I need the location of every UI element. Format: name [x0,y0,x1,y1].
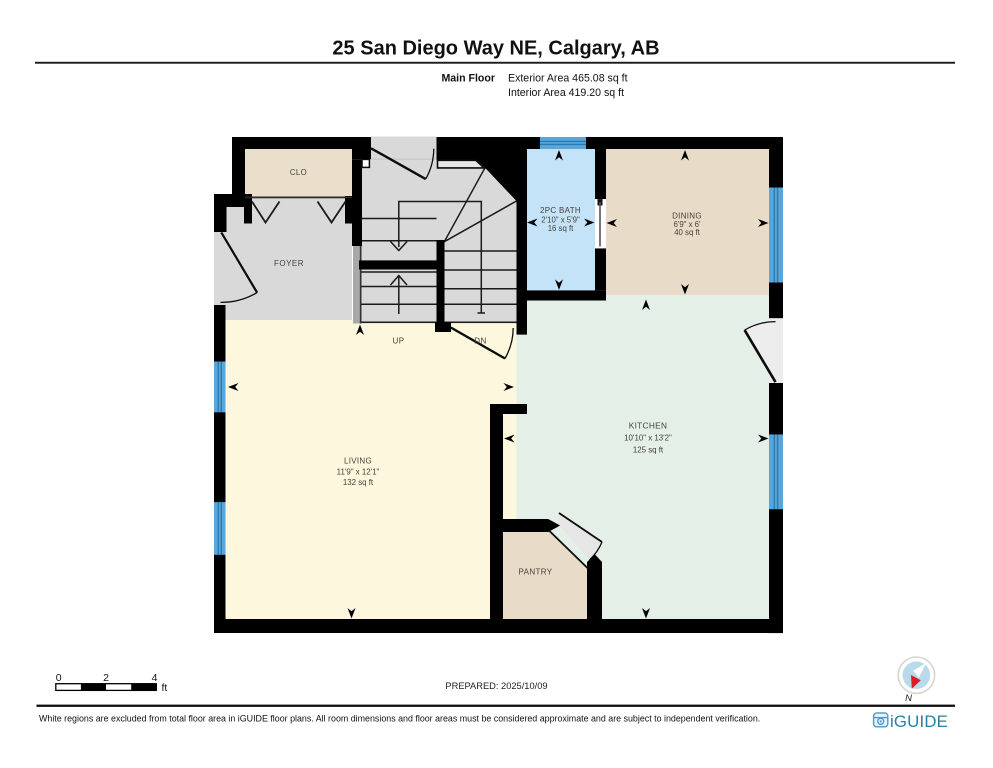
svg-text:10'10" x 13'2": 10'10" x 13'2" [624,434,672,443]
svg-text:UP: UP [392,337,404,346]
svg-text:2: 2 [103,672,109,684]
svg-text:CLO: CLO [290,168,307,177]
svg-text:iGUIDE: iGUIDE [890,712,948,731]
svg-text:N: N [905,693,912,704]
svg-text:2PC BATH: 2PC BATH [540,206,581,215]
svg-text:132 sq ft: 132 sq ft [343,478,374,487]
svg-text:PANTRY: PANTRY [518,568,552,577]
svg-text:FOYER: FOYER [274,259,304,268]
svg-text:White regions are excluded fro: White regions are excluded from total fl… [39,714,760,724]
svg-text:Interior Area 419.20 sq ft: Interior Area 419.20 sq ft [508,87,624,99]
svg-text:ft: ft [162,682,168,694]
svg-text:11'9" x 12'1": 11'9" x 12'1" [337,468,380,477]
svg-text:40 sq ft: 40 sq ft [674,228,700,237]
svg-text:4: 4 [152,672,158,684]
svg-text:25 San Diego Way NE, Calgary,: 25 San Diego Way NE, Calgary, AB [332,38,659,60]
svg-text:16 sq ft: 16 sq ft [548,224,574,233]
svg-text:LIVING: LIVING [344,457,372,466]
svg-text:DN: DN [474,337,487,346]
svg-text:125 sq ft: 125 sq ft [633,446,664,455]
svg-text:Main Floor: Main Floor [441,73,495,85]
svg-text:0: 0 [56,672,62,684]
svg-text:PREPARED: 2025/10/09: PREPARED: 2025/10/09 [445,681,547,691]
svg-text:KITCHEN: KITCHEN [629,421,668,431]
svg-text:Exterior Area 465.08 sq ft: Exterior Area 465.08 sq ft [508,73,628,85]
